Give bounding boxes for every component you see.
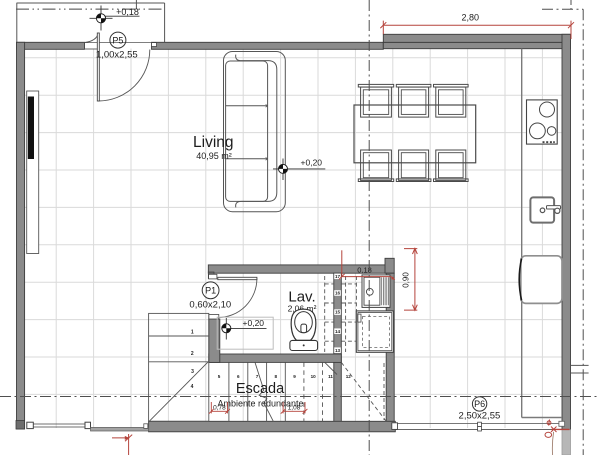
svg-text:Living: Living — [193, 134, 234, 151]
svg-text:P1: P1 — [205, 286, 216, 296]
svg-text:5: 5 — [218, 374, 221, 379]
svg-text:P6: P6 — [474, 399, 485, 409]
svg-text:3: 3 — [191, 369, 194, 375]
svg-text:10: 10 — [311, 374, 317, 379]
svg-text:0,90: 0,90 — [401, 272, 410, 288]
svg-text:2,80: 2,80 — [462, 12, 480, 22]
svg-text:+0,18: +0,18 — [116, 7, 139, 17]
svg-text:7: 7 — [256, 374, 259, 379]
svg-text:0,60x2,10: 0,60x2,10 — [189, 299, 231, 310]
svg-text:1: 1 — [191, 329, 194, 335]
svg-text:Escada: Escada — [236, 381, 285, 397]
svg-text:6: 6 — [237, 374, 240, 379]
svg-text:1,08: 1,08 — [288, 405, 301, 412]
svg-text:0,78: 0,78 — [213, 405, 226, 412]
svg-text:11: 11 — [328, 374, 333, 379]
svg-text:+0,20: +0,20 — [301, 158, 323, 168]
svg-text:8: 8 — [275, 374, 278, 379]
svg-text:15: 15 — [335, 310, 341, 315]
svg-text:1,00x2,55: 1,00x2,55 — [96, 49, 138, 60]
svg-text:+0,20: +0,20 — [243, 318, 265, 328]
svg-text:14: 14 — [335, 329, 341, 334]
svg-text:4: 4 — [191, 384, 194, 390]
svg-text:9: 9 — [293, 374, 296, 379]
svg-text:2: 2 — [191, 351, 194, 357]
svg-text:2,50x2,55: 2,50x2,55 — [459, 411, 501, 422]
svg-text:16: 16 — [335, 291, 341, 296]
svg-text:13: 13 — [335, 348, 341, 353]
svg-text:P5: P5 — [112, 35, 123, 45]
svg-text:40,95 m²: 40,95 m² — [196, 151, 232, 161]
